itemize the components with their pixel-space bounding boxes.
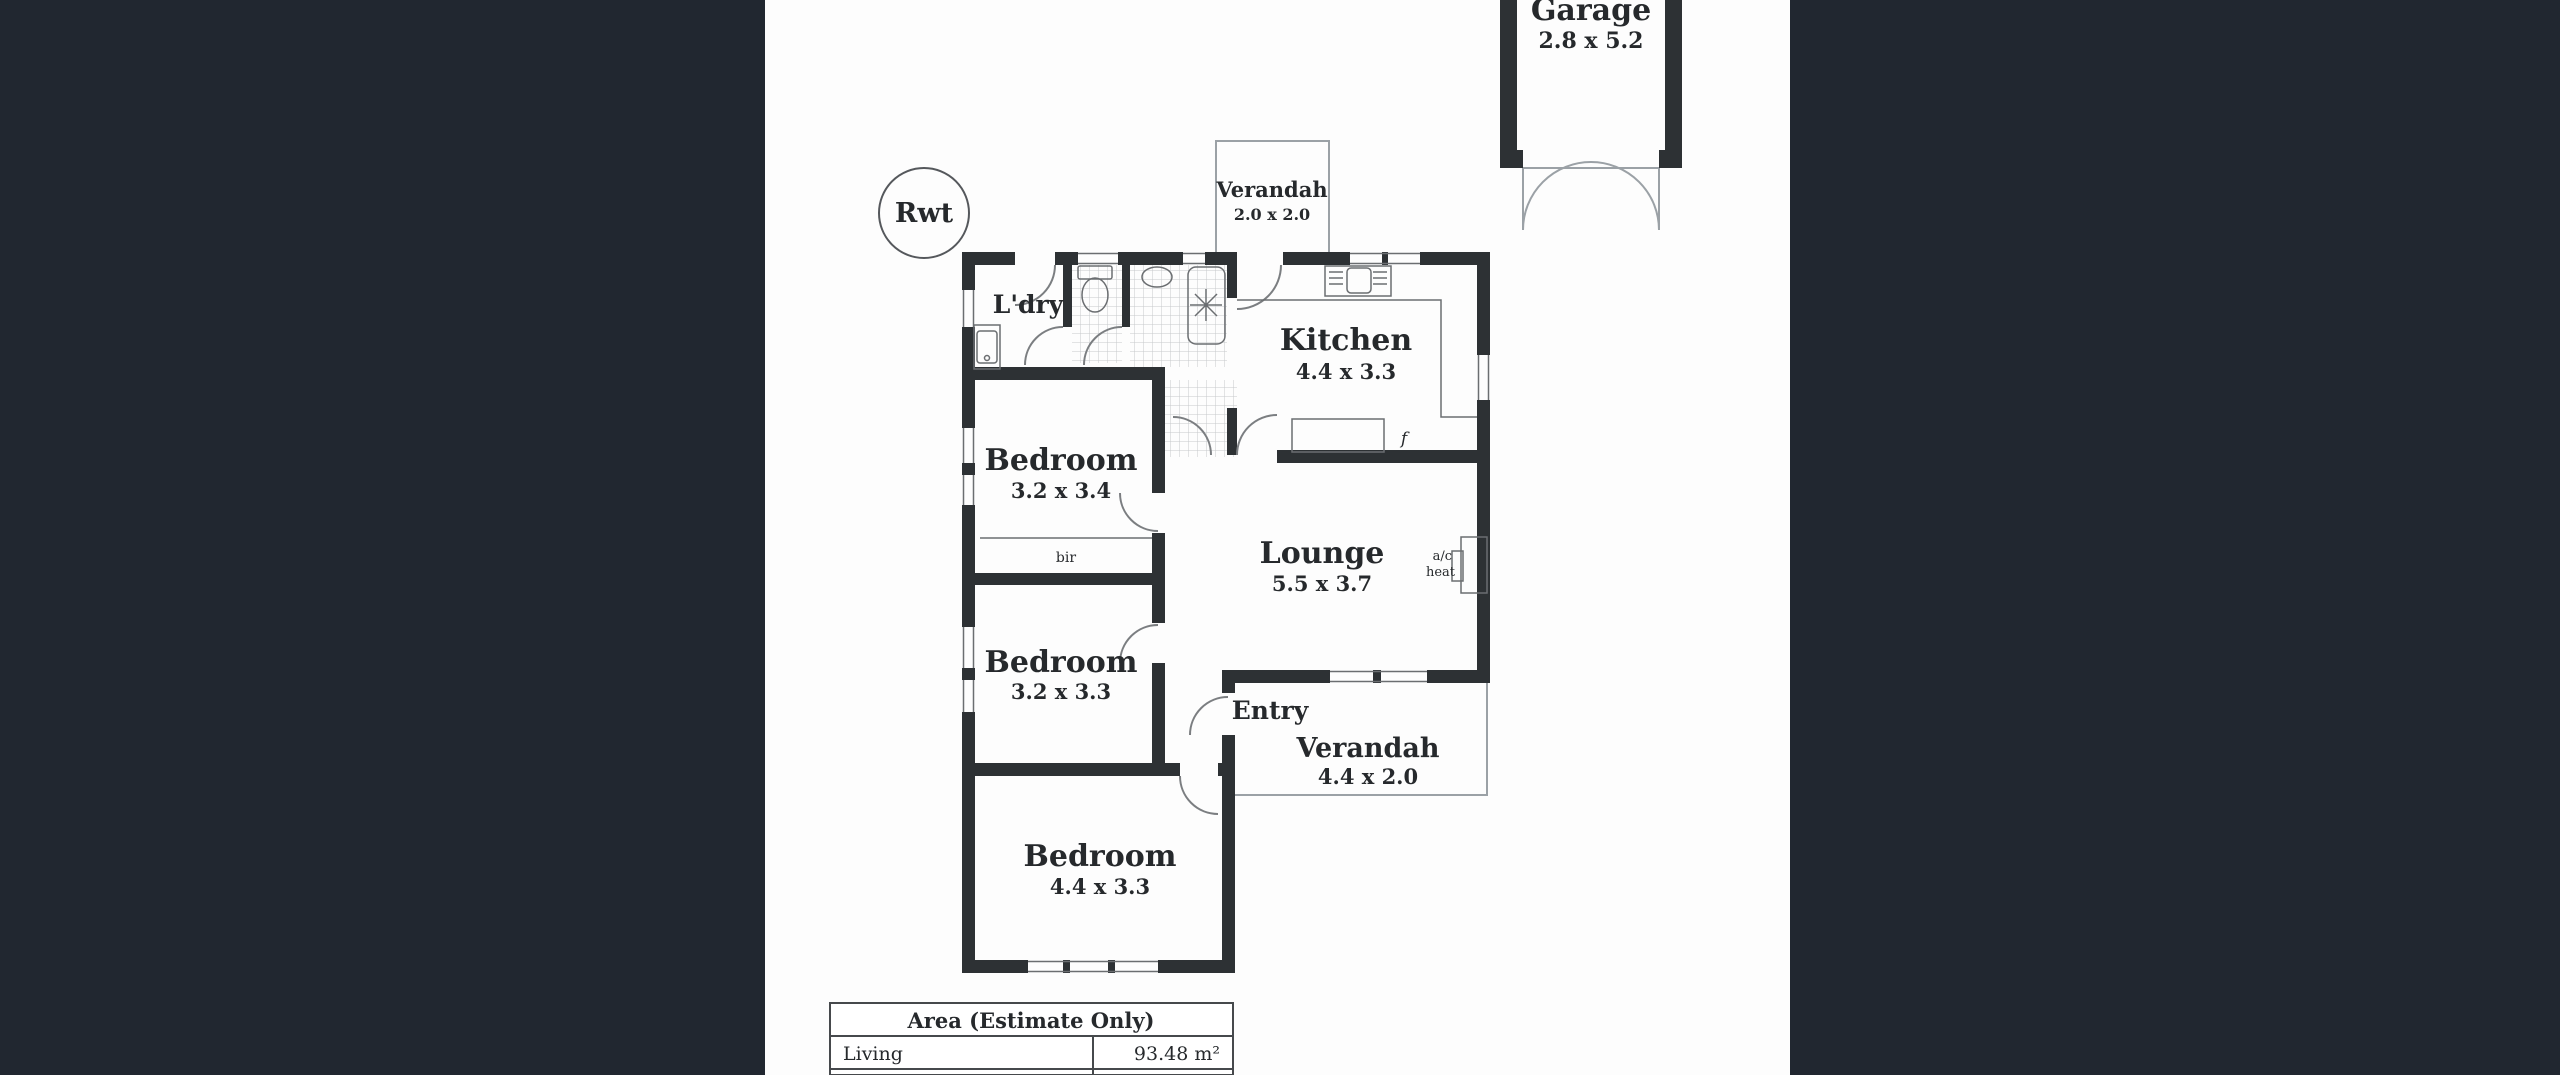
door-arc-front-entry xyxy=(1190,697,1228,735)
fridge-label: f xyxy=(1399,429,1410,449)
window-bedroom2-left-a xyxy=(964,627,974,668)
window-kitchen-right xyxy=(1479,355,1489,400)
ac-label-line2: heat xyxy=(1426,565,1456,580)
verandah-bottom: Entry Verandah 4.4 x 2.0 xyxy=(1232,683,1487,795)
door-arc-bedroom3 xyxy=(1180,776,1218,814)
window-bath-top xyxy=(1183,254,1205,264)
floor-plan: Garage 2.8 x 5.2 Rwt Verandah 2.0 x 2.0 … xyxy=(765,0,1790,1075)
window-bedroom1-left-a xyxy=(964,428,974,463)
area-table: Area (Estimate Only) Living 93.48 m² xyxy=(830,1003,1233,1075)
door-arc-bedroom1 xyxy=(1120,493,1158,531)
entry-label: Entry xyxy=(1232,696,1310,725)
area-table-living-value: 93.48 m² xyxy=(1134,1043,1220,1065)
ac-label-line1: a/c xyxy=(1433,549,1452,564)
left-letterbox-panel xyxy=(0,0,765,1075)
bedroom2-dims: 3.2 x 3.3 xyxy=(1011,679,1111,704)
bathroom-tiles xyxy=(1130,265,1227,367)
right-letterbox-panel xyxy=(1790,0,2560,1075)
door-arc-hall-lounge xyxy=(1237,415,1277,455)
bedroom2-label: Bedroom xyxy=(985,645,1138,680)
bedroom1-label: Bedroom xyxy=(985,443,1138,478)
bir-label: bir xyxy=(1056,550,1076,566)
verandah-top-label: Verandah xyxy=(1215,177,1327,202)
lounge-label: Lounge xyxy=(1260,536,1385,571)
kitchen-dims: 4.4 x 3.3 xyxy=(1296,359,1396,384)
garage-label: Garage xyxy=(1531,0,1651,28)
laundry-label: L'dry xyxy=(993,290,1065,319)
verandah-top-dims: 2.0 x 2.0 xyxy=(1234,205,1310,224)
window-bedroom2-left-b xyxy=(964,680,974,712)
area-table-header: Area (Estimate Only) xyxy=(907,1008,1155,1033)
window-laundry-left xyxy=(964,290,974,327)
laundry-trough-icon xyxy=(974,325,1000,369)
floor-plan-canvas: Garage 2.8 x 5.2 Rwt Verandah 2.0 x 2.0 … xyxy=(765,0,1790,1075)
window-bedroom3-bottom xyxy=(1028,962,1158,972)
bedroom3-dims: 4.4 x 3.3 xyxy=(1050,874,1150,899)
verandah-top: Verandah 2.0 x 2.0 xyxy=(1215,141,1329,252)
garage-door xyxy=(1523,162,1659,230)
hall-tiles xyxy=(1165,380,1237,457)
verandah-bottom-dims: 4.4 x 2.0 xyxy=(1318,764,1418,789)
garage: Garage 2.8 x 5.2 xyxy=(1500,0,1682,230)
door-arc-laundry-inner xyxy=(1025,327,1063,365)
rainwater-tank: Rwt xyxy=(879,168,969,258)
door-arc-verandah-kitchen xyxy=(1237,265,1281,309)
area-table-living-label: Living xyxy=(843,1043,903,1065)
rwt-label: Rwt xyxy=(895,198,954,229)
garage-dims: 2.8 x 5.2 xyxy=(1539,28,1644,54)
lounge-dims: 5.5 x 3.7 xyxy=(1272,571,1372,596)
window-bedroom1-left-b xyxy=(964,475,974,505)
window-wc-top xyxy=(1078,254,1118,264)
verandah-bottom-label: Verandah xyxy=(1295,733,1439,764)
kitchen-label: Kitchen xyxy=(1280,323,1412,358)
bedroom1-dims: 3.2 x 3.4 xyxy=(1011,478,1111,503)
bedroom3-label: Bedroom xyxy=(1024,839,1177,874)
kitchen-sink-icon xyxy=(1325,266,1391,296)
kitchen-bench xyxy=(1292,419,1384,452)
